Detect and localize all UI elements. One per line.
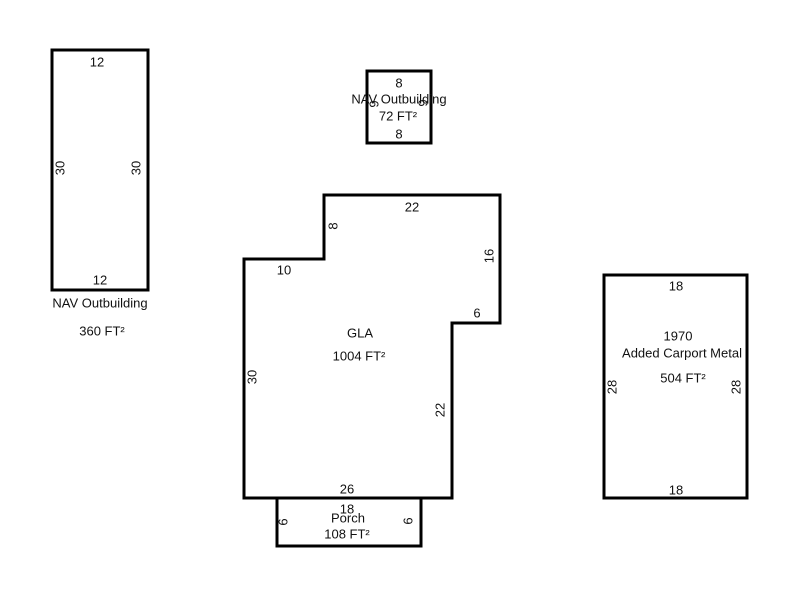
outbuilding-large-area: 360 FT² — [79, 325, 125, 338]
carport-area: 504 FT² — [660, 372, 706, 385]
gla-dim-upper-left: 8 — [327, 222, 340, 229]
porch-title: Porch — [331, 512, 365, 525]
outbuilding-large-dim-right: 30 — [130, 161, 143, 175]
outbuilding-small-dim-left: 9 — [368, 100, 381, 107]
carport-dim-top: 18 — [669, 280, 683, 293]
outbuilding-small-area: 72 FT² — [379, 110, 417, 123]
carport-outline — [604, 275, 747, 498]
gla-dim-top: 22 — [405, 201, 419, 214]
gla-area: 1004 FT² — [333, 350, 386, 363]
outbuilding-small-dim-top: 8 — [395, 77, 402, 90]
outbuilding-large-dim-top: 12 — [90, 56, 104, 69]
sketch-canvas: 12 30 30 12 NAV Outbuilding 360 FT² 8 NA… — [0, 0, 800, 600]
gla-dim-lower-right: 22 — [434, 403, 447, 417]
gla-dim-step: 10 — [277, 264, 291, 277]
gla-dim-bottom: 26 — [340, 483, 354, 496]
gla-outline — [244, 195, 500, 498]
gla-dim-upper-right: 16 — [483, 249, 496, 263]
porch-dim-left: 6 — [277, 518, 290, 525]
outbuilding-large-dim-left: 30 — [54, 161, 67, 175]
porch-area: 108 FT² — [324, 528, 370, 541]
gla-dim-notch: 6 — [473, 307, 480, 320]
carport-title: Added Carport Metal — [622, 347, 742, 360]
outbuilding-small-dim-right: 9 — [417, 99, 430, 106]
carport-dim-left: 28 — [606, 380, 619, 394]
outbuilding-small-dim-bottom: 8 — [395, 128, 402, 141]
carport-dim-right: 28 — [730, 380, 743, 394]
carport-year: 1970 — [664, 330, 693, 343]
porch-dim-right: 6 — [402, 517, 415, 524]
carport-dim-bottom: 18 — [669, 484, 683, 497]
gla-title: GLA — [347, 327, 373, 340]
gla-dim-left: 30 — [246, 370, 259, 384]
outbuilding-large-title: NAV Outbuilding — [52, 297, 147, 310]
outbuilding-large-dim-bottom: 12 — [93, 274, 107, 287]
